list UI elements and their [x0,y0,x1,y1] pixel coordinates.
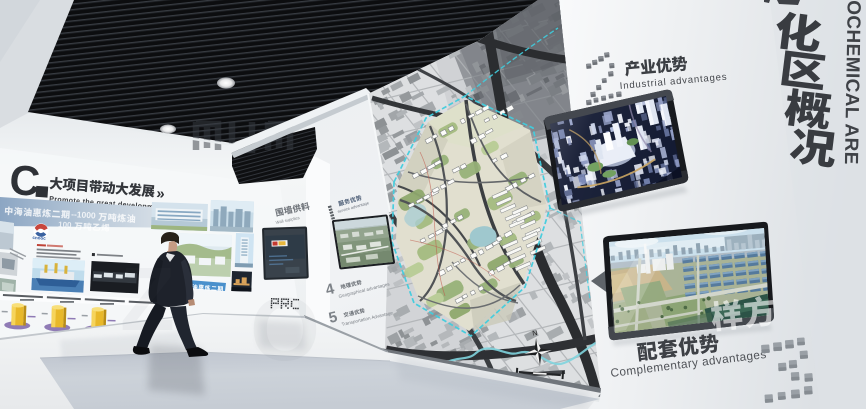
svg-text:ROCHEMICAL ARE: ROCHEMICAL ARE [840,0,864,165]
svg-text:»: » [156,185,166,203]
svg-text:cnooc: cnooc [32,235,46,241]
svg-text:100: 100 [58,220,72,230]
svg-text:C: C [8,156,42,205]
svg-text:Z: Z [120,250,175,350]
svg-text:N: N [532,330,538,338]
svg-text:--1000: --1000 [71,209,96,220]
svg-text:O: O [250,280,320,380]
